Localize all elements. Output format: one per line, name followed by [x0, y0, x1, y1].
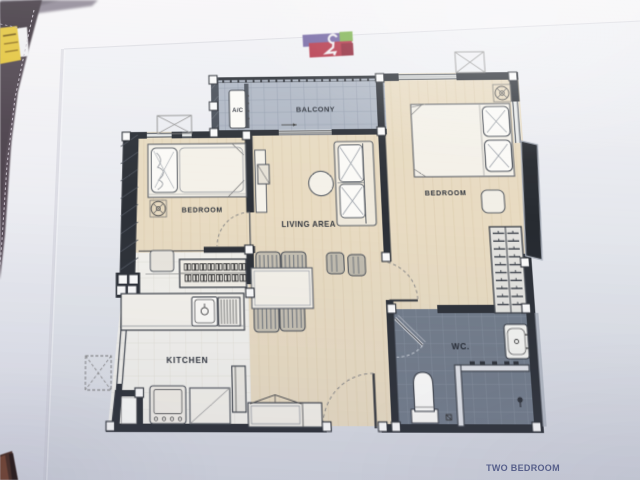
svg-text:KITCHEN: KITCHEN [166, 355, 208, 365]
svg-text:BALCONY: BALCONY [296, 106, 335, 114]
svg-text:LIVING AREA: LIVING AREA [281, 219, 336, 229]
svg-text:BEDROOM: BEDROOM [182, 207, 223, 215]
svg-text:WC.: WC. [451, 341, 470, 351]
svg-text:BEDROOM: BEDROOM [425, 190, 467, 198]
svg-text:A/C: A/C [232, 108, 243, 114]
